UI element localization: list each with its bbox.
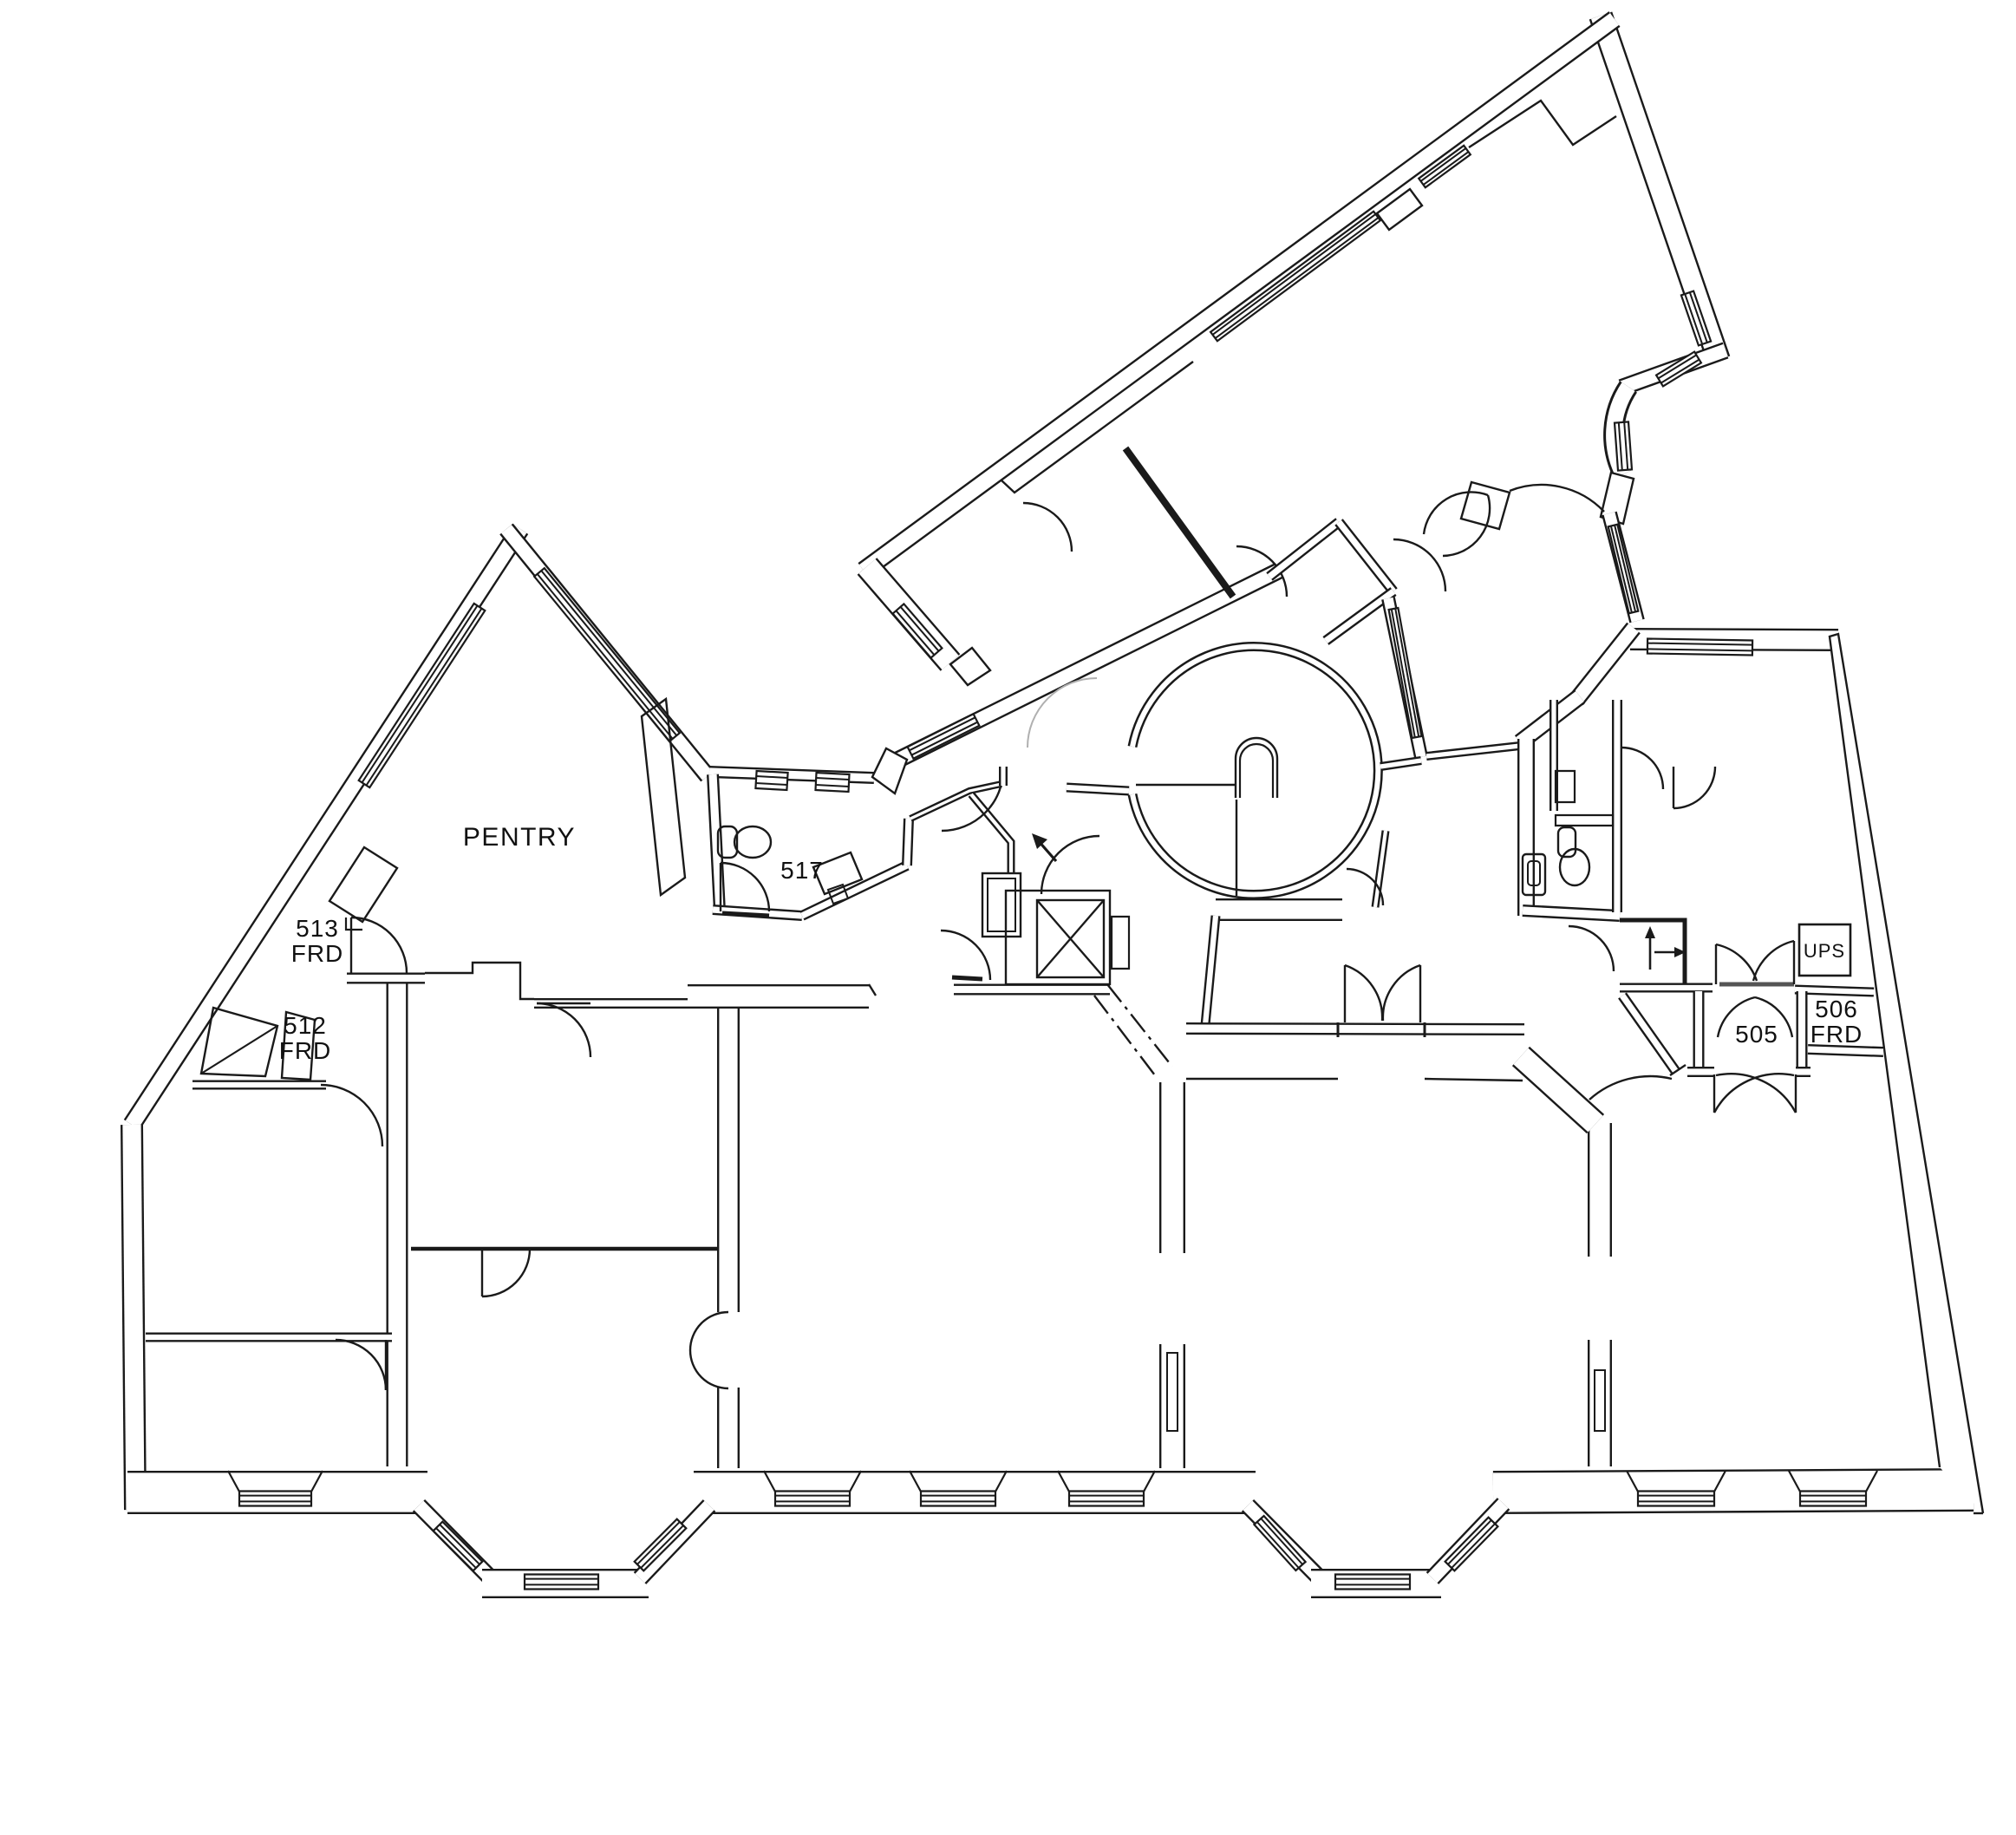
svg-text:FRD: FRD: [279, 1037, 332, 1064]
svg-text:506: 506: [1815, 996, 1858, 1022]
svg-text:513: 513: [296, 915, 339, 942]
svg-text:512: 512: [284, 1012, 327, 1039]
svg-text:517: 517: [780, 857, 824, 884]
svg-text:FRD: FRD: [291, 940, 344, 967]
svg-text:FRD: FRD: [1810, 1021, 1863, 1048]
svg-text:UPS: UPS: [1804, 940, 1845, 962]
svg-text:PENTRY: PENTRY: [463, 823, 576, 852]
svg-text:505: 505: [1735, 1021, 1778, 1048]
